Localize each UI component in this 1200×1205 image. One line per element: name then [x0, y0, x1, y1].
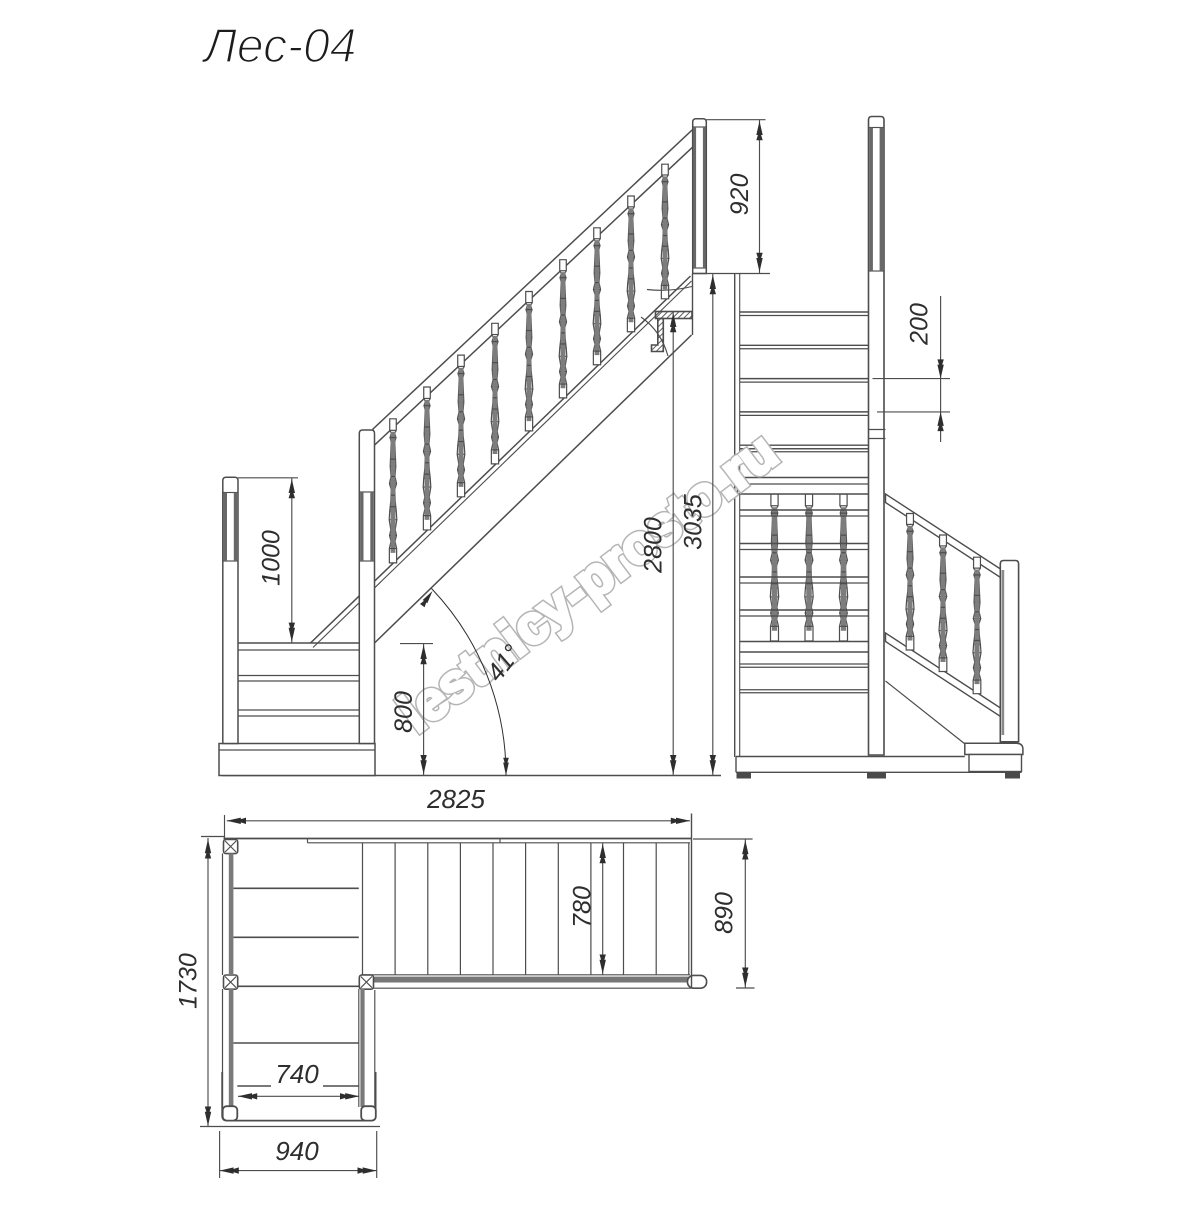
svg-text:1730: 1730 — [175, 953, 203, 1009]
svg-text:2800: 2800 — [640, 517, 668, 574]
svg-text:800: 800 — [390, 691, 418, 733]
svg-text:3035: 3035 — [680, 494, 708, 550]
svg-text:940: 940 — [275, 1136, 319, 1166]
svg-text:2825: 2825 — [426, 784, 485, 814]
svg-text:890: 890 — [711, 892, 739, 934]
svg-text:200: 200 — [906, 303, 934, 346]
svg-text:740: 740 — [275, 1059, 319, 1089]
svg-text:1000: 1000 — [258, 530, 286, 586]
svg-text:Лес-04: Лес-04 — [201, 20, 356, 73]
svg-text:920: 920 — [726, 174, 754, 216]
svg-text:780: 780 — [569, 886, 597, 928]
